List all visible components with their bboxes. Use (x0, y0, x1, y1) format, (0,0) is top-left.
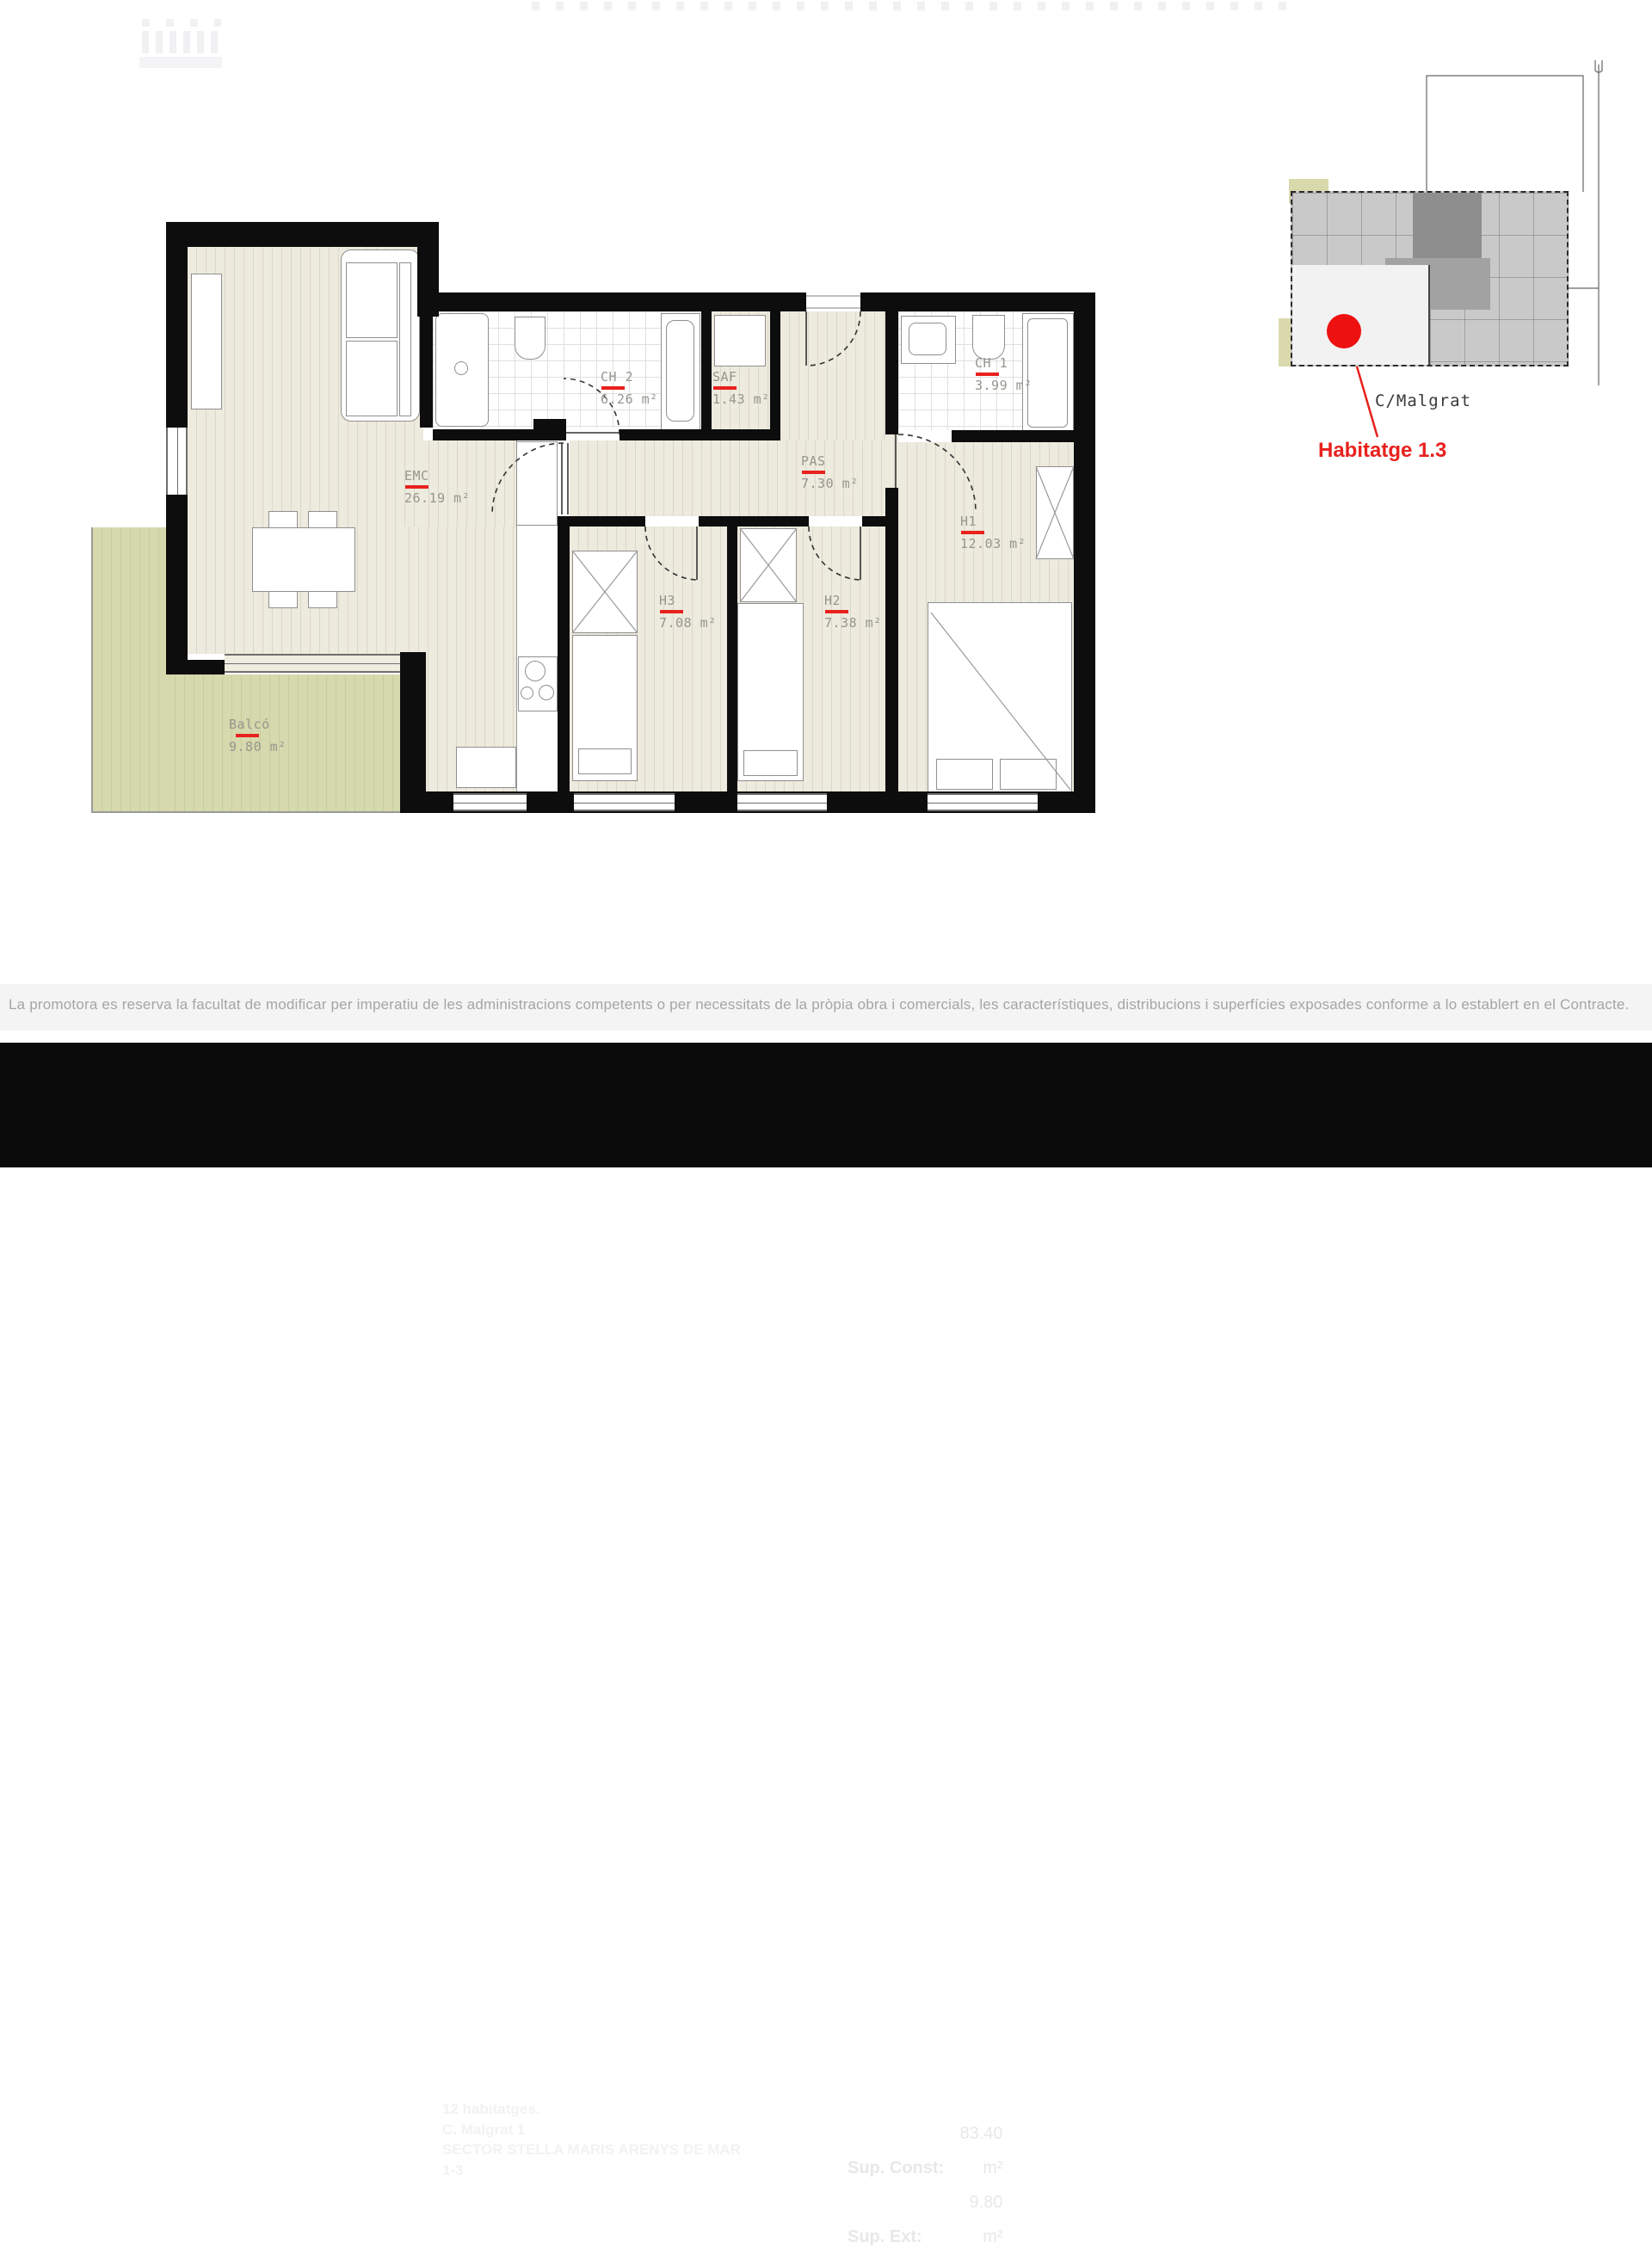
bathtub-inner (666, 320, 694, 422)
keyplan-unit-marker (1327, 314, 1361, 348)
room-label-h1: H1 12.03 m² (960, 514, 1026, 551)
room-name: PAS (801, 454, 859, 469)
sup-ext-label: Sup. Ext: (848, 2220, 946, 2254)
luxhabitat-wordmark: LuxHabitat (120, 2118, 317, 2165)
pillow (578, 748, 632, 774)
surface-info: Sup. Const: 83.40 m² Sup. Ext: 9.80 m² (848, 2116, 1003, 2254)
room-label-pas: PAS 7.30 m² (801, 454, 859, 491)
lux-stella-maris-wordmark: Lux Stella Maris (1509, 2120, 1594, 2159)
sink-bowl (909, 323, 946, 355)
toilet (972, 315, 1005, 360)
logo-line: Lux Stella (1509, 2120, 1594, 2140)
shower-drain (454, 361, 468, 375)
room-area: 6.26 m² (601, 392, 658, 407)
north-label: N. (1091, 2099, 1108, 2119)
chair (268, 511, 298, 528)
sofa-cushion (346, 262, 398, 338)
room-name: SAF (712, 370, 770, 385)
burner (521, 687, 533, 699)
label-underline (976, 373, 999, 376)
project-info: 12 habitatges. C. Malgrat 1 SECTOR STELL… (442, 2099, 741, 2180)
corridor-pas-floor (780, 311, 885, 440)
key-plan: C/Malgrat Habitatge 1.3 (1248, 43, 1652, 490)
project-line: C. Malgrat 1 (442, 2120, 741, 2140)
room-name: CH 2 (601, 370, 658, 385)
dining-table (252, 527, 355, 592)
room-label-h2: H2 7.38 m² (824, 594, 882, 631)
room-name: H1 (960, 514, 1026, 529)
room-area: 12.03 m² (960, 537, 1026, 551)
wardrobe (1036, 466, 1074, 559)
room-name: H3 (659, 594, 717, 608)
floorplan-sheet: { "plan": { "rooms": [ {"id":"emc", "nam… (0, 0, 1652, 1167)
kitchen-cabinet (516, 441, 558, 526)
label-underline (405, 485, 428, 489)
room-label-saf: SAF 1.43 m² (712, 370, 770, 407)
sideboard (191, 274, 222, 410)
surface-const-row: Sup. Const: 83.40 m² (848, 2116, 1003, 2185)
room-label-emc: EMC 26.19 m² (404, 469, 470, 506)
project-line: SECTOR STELLA MARIS ARENYS DE MAR (442, 2140, 741, 2160)
pillow (743, 750, 798, 776)
kitchen-island (456, 747, 516, 788)
room-name: EMC (404, 469, 470, 483)
floor-plan: EMC 26.19 m² CH 2 6.26 m² SAF 1.43 m² PA… (0, 0, 1153, 860)
project-line: 12 habitatges. (442, 2099, 741, 2120)
room-name: Balcó (229, 717, 287, 732)
label-underline (825, 610, 848, 613)
label-underline (601, 386, 625, 390)
street-label: C/Malgrat (1375, 391, 1471, 410)
logo-line: Maris (1509, 2140, 1594, 2159)
room-area: 7.30 m² (801, 477, 859, 491)
balcony-edge (91, 527, 93, 813)
luxhabitat-logo-icon (79, 2128, 112, 2161)
unit-label: Habitatge 1.3 (1318, 439, 1446, 463)
balcony-slider-door (225, 654, 400, 673)
label-underline (961, 531, 984, 534)
room-label-balco: Balcó 9.80 m² (229, 717, 287, 754)
disclaimer-text: La promotora es reserva la facultat de m… (9, 996, 1643, 1013)
room-label-ch2: CH 2 6.26 m² (601, 370, 658, 407)
pillow (1000, 759, 1057, 790)
window (928, 793, 1038, 811)
north-arrow-icon (1069, 2111, 1086, 2125)
room-label-h3: H3 7.08 m² (659, 594, 717, 631)
room-area: 1.43 m² (712, 392, 770, 407)
wardrobe (740, 528, 797, 602)
room-area: 9.80 m² (229, 740, 287, 754)
sofa-cushion (346, 341, 398, 416)
window (737, 793, 827, 811)
sup-ext-value: 9.80 m² (952, 2185, 1003, 2254)
lux-stella-maris-logo-icon (1473, 2120, 1502, 2158)
label-underline (660, 610, 683, 613)
room-name: H2 (824, 594, 882, 608)
label-underline (802, 471, 825, 474)
room-label-ch1: CH 1 3.99 m² (975, 356, 1032, 393)
chair (308, 591, 337, 608)
room-name: CH 1 (975, 356, 1032, 371)
sup-const-value: 83.40 m² (952, 2116, 1003, 2185)
burner (539, 685, 554, 700)
wardrobe (572, 551, 638, 633)
balcony-floor (93, 527, 166, 813)
keyplan-unit-highlight (1292, 265, 1430, 365)
footer-bar: LuxHabitat 12 habitatges. C. Malgrat 1 S… (0, 1043, 1652, 1167)
toilet (515, 317, 546, 360)
chair (308, 511, 337, 528)
room-area: 7.38 m² (824, 616, 882, 631)
sofa-back (399, 262, 411, 416)
window (453, 793, 527, 811)
surface-ext-row: Sup. Ext: 9.80 m² (848, 2185, 1003, 2254)
balcony-edge (91, 811, 428, 813)
label-underline (713, 386, 737, 390)
burner (525, 661, 546, 681)
sup-const-label: Sup. Const: (848, 2151, 946, 2185)
window (166, 428, 188, 495)
pillow (936, 759, 993, 790)
shower-inner (1027, 318, 1068, 428)
project-line: 1-3 (442, 2160, 741, 2181)
room-h1-door-floor (885, 434, 898, 488)
room-area: 26.19 m² (404, 491, 470, 506)
window (574, 793, 675, 811)
room-area: 3.99 m² (975, 379, 1032, 393)
chair (268, 591, 298, 608)
washing-machine (714, 315, 766, 366)
label-underline (236, 734, 259, 737)
room-area: 7.08 m² (659, 616, 717, 631)
